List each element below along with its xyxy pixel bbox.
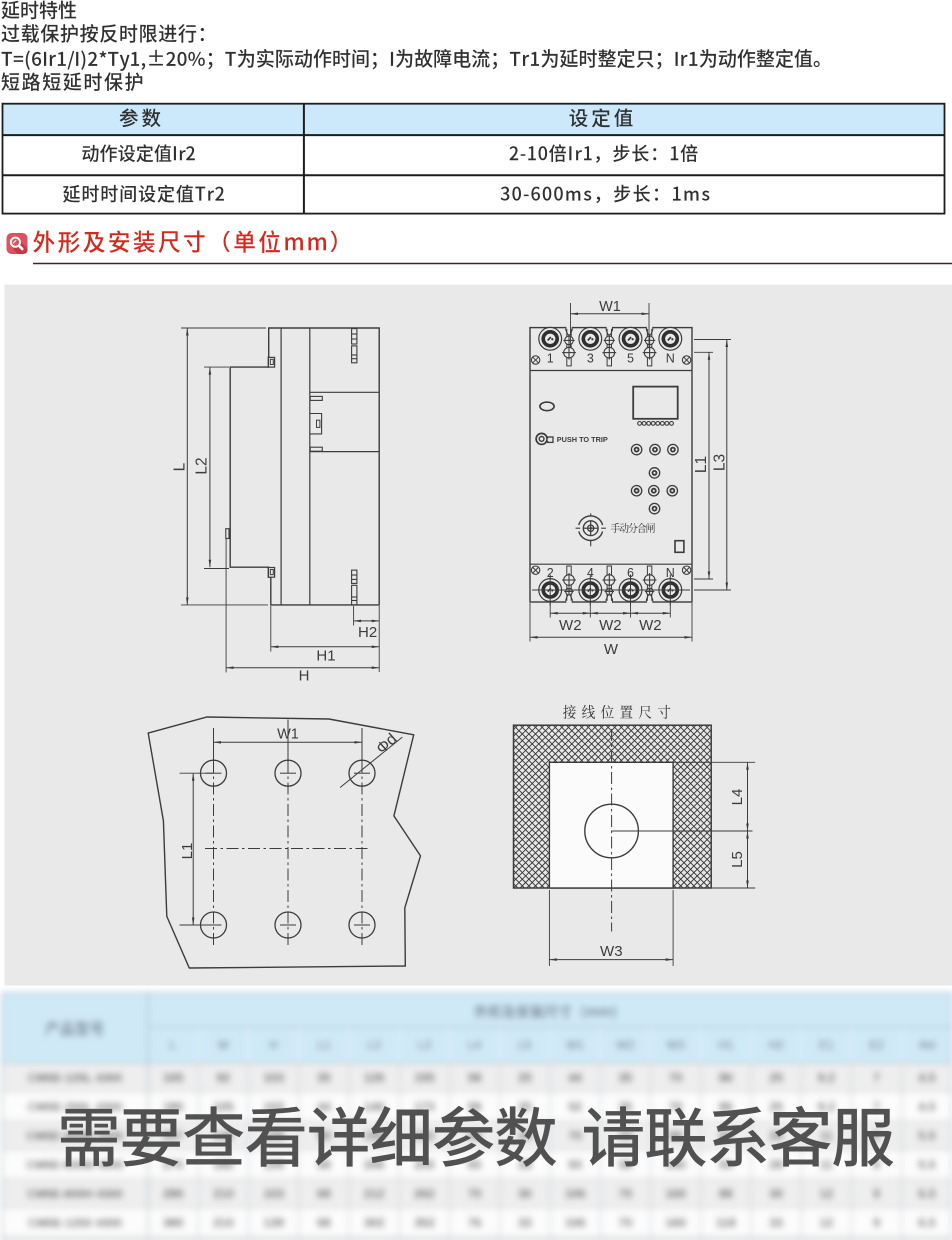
svg-text:L4: L4 [729,789,746,806]
svg-text:35: 35 [618,1071,632,1085]
svg-text:118: 118 [716,1216,736,1230]
svg-text:70: 70 [669,1071,683,1085]
svg-text:6.5: 6.5 [918,1187,935,1201]
svg-text:352: 352 [414,1216,435,1230]
svg-text:70: 70 [568,1129,582,1143]
svg-text:25: 25 [518,1071,532,1085]
svg-text:11: 11 [820,1158,833,1172]
svg-text:70: 70 [618,1216,632,1230]
svg-text:H2: H2 [768,1038,784,1052]
svg-text:W1: W1 [599,299,621,315]
svg-text:H1: H1 [718,1038,734,1052]
svg-text:103: 103 [263,1071,284,1085]
svg-text:68: 68 [317,1216,331,1230]
svg-text:CM5E-125L 4300: CM5E-125L 4300 [28,1071,123,1085]
svg-text:11: 11 [820,1129,833,1143]
svg-text:9.2: 9.2 [818,1071,835,1085]
svg-text:L3: L3 [418,1038,432,1052]
svg-text:L1: L1 [693,456,710,473]
svg-text:280: 280 [163,1187,184,1201]
svg-text:W2: W2 [559,617,582,634]
svg-text:28: 28 [769,1158,783,1172]
svg-text:W1: W1 [566,1038,584,1052]
svg-text:W2: W2 [616,1038,634,1052]
svg-text:88: 88 [719,1187,733,1201]
svg-text:L1: L1 [317,1038,331,1052]
svg-text:4: 4 [587,566,594,580]
svg-text:W2: W2 [639,617,662,634]
svg-text:155: 155 [414,1071,435,1085]
svg-text:CM5E-800H 4300: CM5E-800H 4300 [27,1187,123,1201]
svg-text:9: 9 [873,1216,880,1230]
svg-text:L5: L5 [729,851,746,868]
svg-text:58: 58 [468,1071,482,1085]
svg-text:5.5: 5.5 [918,1129,935,1143]
svg-text:4.5: 4.5 [918,1100,935,1114]
svg-text:160: 160 [665,1187,686,1201]
svg-text:86: 86 [719,1071,733,1085]
svg-text:103: 103 [263,1187,284,1201]
svg-text:139: 139 [263,1216,284,1230]
svg-text:68: 68 [317,1187,331,1201]
svg-text:106: 106 [565,1216,586,1230]
svg-text:12: 12 [819,1187,833,1201]
svg-text:76: 76 [468,1216,482,1230]
svg-text:9: 9 [873,1187,880,1201]
svg-text:5.5: 5.5 [918,1158,935,1172]
svg-text:7: 7 [873,1071,880,1085]
svg-text:33: 33 [518,1216,532,1230]
svg-text:25: 25 [769,1100,783,1114]
svg-text:E2: E2 [869,1038,884,1052]
svg-text:106: 106 [565,1187,586,1201]
svg-text:9.2: 9.2 [818,1100,835,1114]
svg-text:L2: L2 [367,1038,381,1052]
svg-text:4.5: 4.5 [918,1071,935,1085]
svg-text:35: 35 [317,1071,331,1085]
svg-text:H2: H2 [358,624,377,641]
svg-text:70: 70 [468,1187,482,1201]
svg-text:302: 302 [364,1216,385,1230]
svg-text:W: W [604,641,619,658]
svg-text:CM5E-1250 4300: CM5E-1250 4300 [28,1216,122,1230]
svg-text:L5: L5 [518,1038,532,1052]
svg-text:380: 380 [163,1216,184,1230]
svg-text:N: N [666,566,675,580]
svg-text:H: H [269,1038,278,1052]
svg-text:6: 6 [627,566,634,580]
svg-text:210: 210 [213,1187,234,1201]
svg-text:3: 3 [587,351,594,365]
svg-text:210: 210 [213,1216,234,1230]
svg-text:70: 70 [618,1187,632,1201]
svg-text:44: 44 [568,1071,582,1085]
svg-text:PUSH TO TRIP: PUSH TO TRIP [557,435,608,444]
svg-text:33: 33 [769,1216,783,1230]
svg-text:L4: L4 [468,1038,482,1052]
svg-text:Φd: Φd [919,1038,935,1052]
svg-text:262: 262 [414,1187,435,1201]
svg-text:1: 1 [547,351,554,365]
svg-text:W: W [218,1038,230,1052]
svg-text:92: 92 [216,1071,230,1085]
svg-text:165: 165 [163,1071,184,1085]
svg-text:5: 5 [627,351,634,365]
svg-text:L3: L3 [712,454,729,471]
svg-text:93: 93 [568,1158,582,1172]
svg-text:W3: W3 [667,1038,685,1052]
svg-text:W3: W3 [600,943,623,960]
svg-text:30: 30 [769,1187,783,1201]
svg-text:2: 2 [547,566,554,580]
svg-text:H1: H1 [316,647,335,664]
svg-text:N: N [666,351,675,365]
svg-text:W2: W2 [599,617,622,634]
svg-text:L1: L1 [179,843,196,860]
svg-text:L: L [172,462,189,471]
svg-text:L2: L2 [194,457,211,474]
svg-text:E1: E1 [819,1038,834,1052]
svg-text:W1: W1 [277,727,299,743]
svg-text:H: H [299,668,310,685]
svg-text:52: 52 [568,1100,582,1114]
svg-text:126: 126 [364,1071,385,1085]
svg-text:25: 25 [769,1071,783,1085]
svg-text:12: 12 [819,1216,833,1230]
svg-text:30: 30 [518,1187,532,1201]
svg-text:140: 140 [364,1100,385,1114]
svg-text:L: L [170,1038,177,1052]
svg-text:6.5: 6.5 [918,1216,935,1230]
svg-text:160: 160 [665,1216,686,1230]
svg-text:212: 212 [364,1187,385,1201]
